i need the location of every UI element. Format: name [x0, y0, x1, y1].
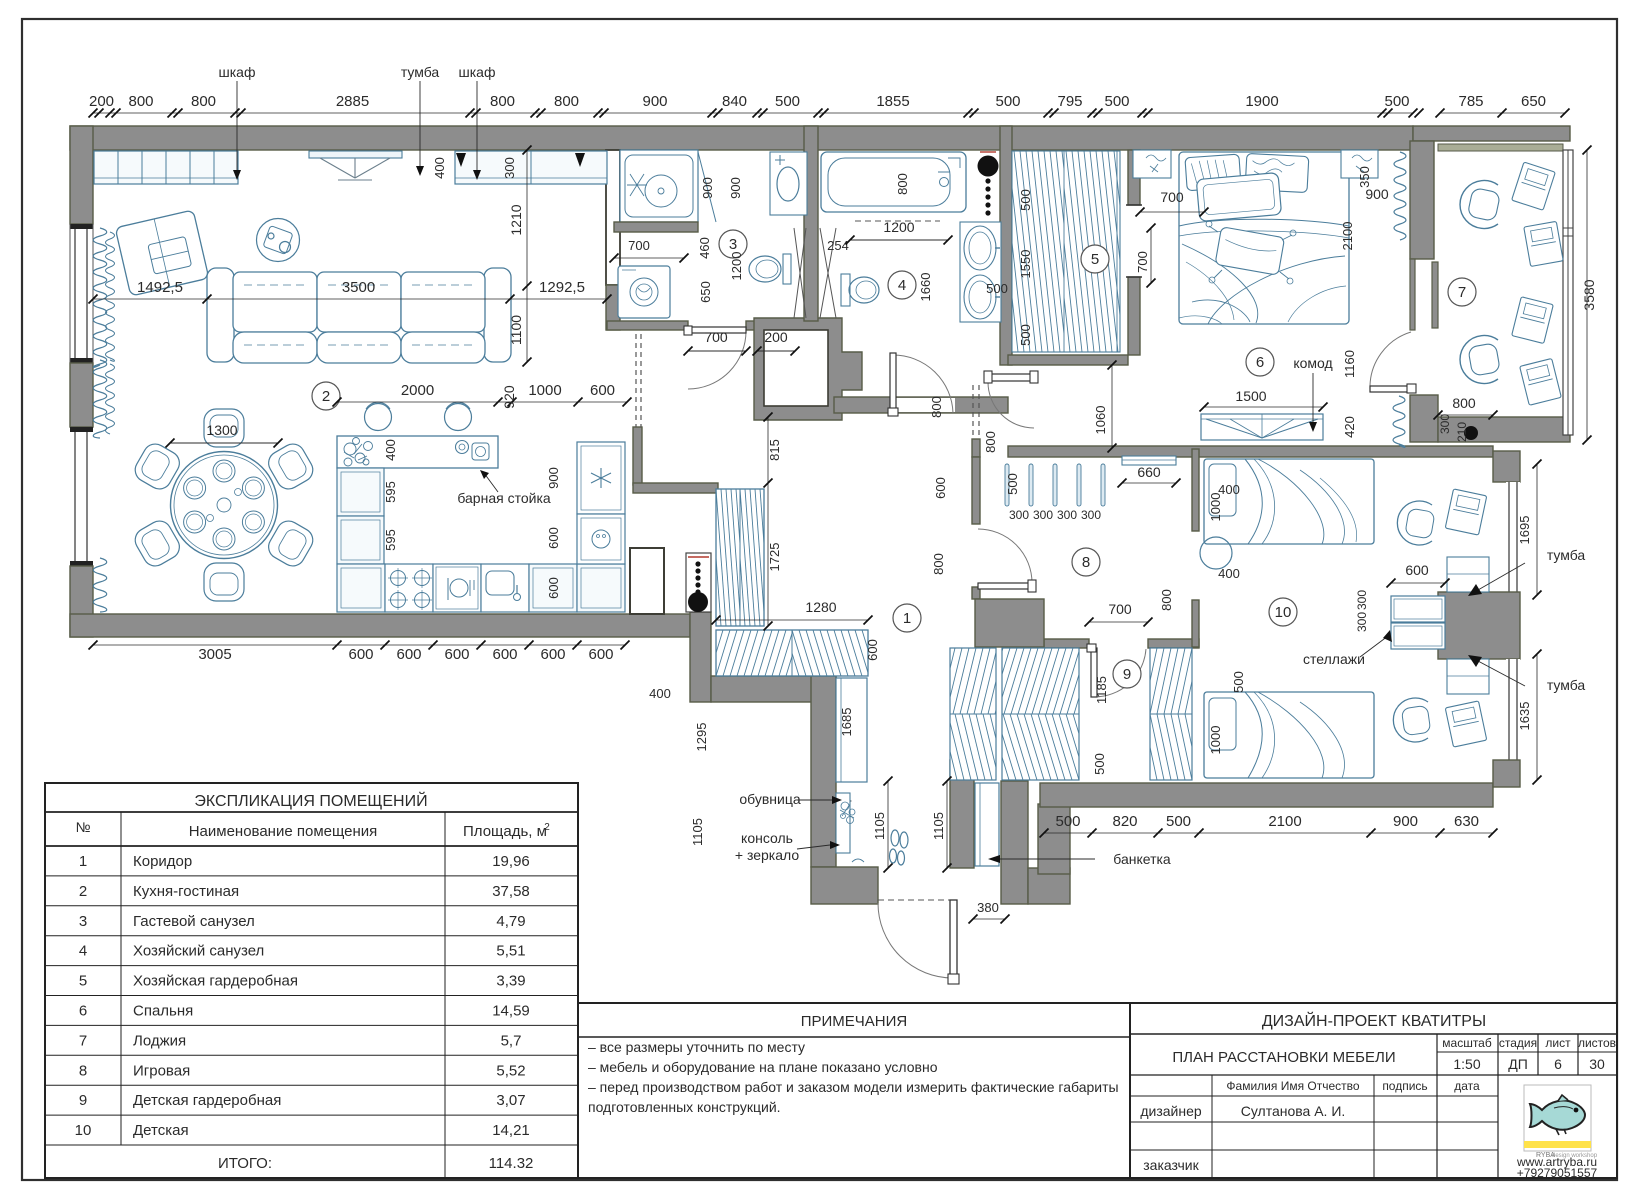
svg-text:Гастевой санузел: Гастевой санузел	[133, 913, 255, 930]
svg-text:4: 4	[79, 943, 87, 960]
svg-text:300: 300	[502, 157, 517, 179]
svg-text:банкетка: банкетка	[1113, 851, 1171, 867]
svg-text:ДП: ДП	[1508, 1056, 1528, 1072]
svg-text:840: 840	[722, 93, 747, 110]
svg-text:1900: 1900	[1245, 93, 1278, 110]
svg-text:1200: 1200	[883, 219, 914, 235]
svg-text:900: 900	[546, 467, 561, 489]
svg-text:500: 500	[1384, 93, 1409, 110]
svg-text:600: 600	[348, 646, 373, 663]
svg-text:660: 660	[1137, 464, 1161, 480]
svg-text:700: 700	[1160, 189, 1184, 205]
svg-text:1105: 1105	[931, 812, 946, 840]
svg-text:Кухня-гостиная: Кухня-гостиная	[133, 883, 239, 900]
svg-text:630: 630	[1454, 813, 1479, 830]
svg-text:Спальня: Спальня	[133, 1003, 193, 1020]
svg-text:4,79: 4,79	[496, 913, 525, 930]
svg-text:6: 6	[1256, 354, 1264, 371]
svg-text:Султанова А. И.: Султанова А. И.	[1241, 1103, 1346, 1119]
svg-text:9: 9	[1123, 666, 1131, 683]
svg-text:595: 595	[383, 529, 398, 551]
svg-text:600: 600	[396, 646, 421, 663]
svg-text:тумба: тумба	[1547, 547, 1586, 563]
svg-text:14,21: 14,21	[492, 1122, 530, 1139]
svg-text:200: 200	[764, 329, 788, 345]
svg-text:стеллажи: стеллажи	[1303, 651, 1365, 667]
svg-text:300: 300	[1355, 590, 1369, 610]
svg-text:500: 500	[986, 281, 1008, 296]
svg-text:1500: 1500	[1235, 388, 1266, 404]
svg-text:815: 815	[767, 439, 782, 461]
svg-text:600: 600	[444, 646, 469, 663]
svg-text:500: 500	[1231, 671, 1246, 693]
svg-text:300: 300	[1438, 414, 1452, 434]
svg-text:700: 700	[1135, 251, 1150, 273]
svg-text:700: 700	[704, 329, 728, 345]
svg-text:500: 500	[1018, 324, 1033, 346]
svg-text:800: 800	[1452, 395, 1476, 411]
svg-text:барная стойка: барная стойка	[457, 490, 551, 506]
svg-text:4: 4	[898, 277, 906, 294]
svg-text:300: 300	[1009, 508, 1029, 522]
svg-text:1210: 1210	[508, 204, 524, 235]
svg-text:1160: 1160	[1342, 350, 1357, 378]
svg-text:800: 800	[128, 93, 153, 110]
svg-text:+ зеркало: + зеркало	[735, 847, 799, 863]
svg-text:500: 500	[775, 93, 800, 110]
svg-text:300: 300	[1033, 508, 1053, 522]
svg-text:3,07: 3,07	[496, 1092, 525, 1109]
svg-text:1492,5: 1492,5	[137, 279, 183, 296]
svg-text:7: 7	[79, 1032, 87, 1049]
svg-text:1292,5: 1292,5	[539, 279, 585, 296]
svg-text:400: 400	[432, 157, 447, 179]
svg-text:1: 1	[903, 610, 911, 627]
svg-text:400: 400	[383, 439, 398, 461]
svg-text:1725: 1725	[767, 543, 782, 572]
svg-text:– все размеры уточнить по мест: – все размеры уточнить по месту	[588, 1039, 805, 1055]
svg-text:тумба: тумба	[401, 64, 440, 80]
svg-text:1000: 1000	[1208, 726, 1223, 755]
svg-text:заказчик: заказчик	[1143, 1157, 1199, 1173]
svg-text:8: 8	[79, 1062, 87, 1079]
svg-text:1300: 1300	[206, 422, 237, 438]
svg-text:800: 800	[929, 396, 944, 418]
svg-text:500: 500	[995, 93, 1020, 110]
svg-text:1855: 1855	[876, 93, 909, 110]
svg-text:Коридор: Коридор	[133, 853, 192, 870]
svg-text:3580: 3580	[1581, 279, 1597, 310]
svg-text:800: 800	[895, 173, 910, 195]
svg-text:– перед производством работ и: – перед производством работ и заказом мо…	[588, 1079, 1119, 1095]
svg-text:1100: 1100	[508, 315, 524, 345]
svg-text:500: 500	[1092, 753, 1107, 775]
svg-text:1000: 1000	[1208, 493, 1223, 522]
svg-text:Детская: Детская	[133, 1122, 189, 1139]
svg-text:Площадь, м: Площадь, м	[463, 823, 547, 840]
svg-text:1105: 1105	[690, 818, 705, 846]
svg-text:254: 254	[827, 238, 849, 253]
svg-text:8: 8	[1082, 554, 1090, 571]
svg-text:900: 900	[700, 177, 715, 199]
svg-text:300: 300	[1057, 508, 1077, 522]
svg-text:2: 2	[322, 388, 330, 405]
svg-text:шкаф: шкаф	[459, 64, 496, 80]
svg-text:700: 700	[1108, 601, 1132, 617]
svg-text:800: 800	[931, 553, 946, 575]
svg-text:масштаб: масштаб	[1442, 1036, 1492, 1050]
svg-text:6: 6	[79, 1003, 87, 1020]
svg-text:5,7: 5,7	[501, 1032, 522, 1049]
svg-text:стадия: стадия	[1499, 1036, 1537, 1050]
svg-text:тумба: тумба	[1547, 677, 1586, 693]
svg-text:600: 600	[933, 477, 948, 499]
svg-text:10: 10	[75, 1122, 92, 1139]
svg-text:200: 200	[89, 93, 114, 110]
svg-text:800: 800	[983, 431, 998, 453]
svg-text:460: 460	[697, 237, 712, 259]
svg-text:900: 900	[642, 93, 667, 110]
svg-text:800: 800	[1159, 589, 1174, 611]
svg-text:5,52: 5,52	[496, 1062, 525, 1079]
svg-text:+79279051557: +79279051557	[1517, 1166, 1598, 1180]
svg-text:9: 9	[79, 1092, 87, 1109]
svg-text:дизайнер: дизайнер	[1140, 1103, 1202, 1119]
svg-text:650: 650	[698, 281, 713, 303]
svg-text:комод: комод	[1293, 355, 1332, 371]
svg-text:5: 5	[1091, 251, 1099, 268]
svg-text:650: 650	[1521, 93, 1546, 110]
svg-text:114.32: 114.32	[489, 1155, 534, 1172]
svg-text:600: 600	[546, 527, 561, 549]
svg-text:1685: 1685	[839, 708, 854, 737]
svg-text:консоль: консоль	[741, 830, 793, 846]
svg-text:3,39: 3,39	[496, 973, 525, 990]
svg-text:900: 900	[728, 177, 743, 199]
svg-text:2885: 2885	[336, 93, 369, 110]
svg-text:2: 2	[544, 822, 550, 833]
svg-text:380: 380	[977, 900, 999, 915]
svg-text:1660: 1660	[918, 273, 933, 302]
svg-text:5,51: 5,51	[496, 943, 525, 960]
svg-text:Лоджия: Лоджия	[133, 1032, 186, 1049]
svg-text:800: 800	[490, 93, 515, 110]
svg-text:листов: листов	[1578, 1036, 1616, 1050]
svg-text:2100: 2100	[1340, 222, 1355, 251]
svg-text:7: 7	[1458, 284, 1466, 301]
svg-text:Наименование помещения: Наименование помещения	[189, 823, 378, 840]
svg-text:600: 600	[1405, 562, 1429, 578]
svg-text:1105: 1105	[872, 812, 887, 840]
svg-text:1: 1	[79, 853, 87, 870]
svg-text:700: 700	[628, 238, 650, 253]
svg-text:шкаф: шкаф	[219, 64, 256, 80]
svg-text:14,59: 14,59	[492, 1003, 530, 1020]
svg-text:800: 800	[191, 93, 216, 110]
svg-text:500: 500	[1018, 189, 1033, 211]
svg-text:подпись: подпись	[1382, 1079, 1427, 1093]
svg-text:ДИЗАЙН-ПРОЕКТ КВАТИТРЫ: ДИЗАЙН-ПРОЕКТ КВАТИТРЫ	[1262, 1011, 1486, 1030]
svg-text:3500: 3500	[342, 279, 375, 296]
svg-text:30: 30	[1589, 1056, 1605, 1072]
svg-text:обувница: обувница	[739, 791, 801, 807]
svg-text:Фамилия Имя Отчество: Фамилия Имя Отчество	[1226, 1079, 1359, 1093]
svg-text:лист: лист	[1545, 1036, 1571, 1050]
svg-text:№: №	[75, 819, 90, 835]
svg-text:– мебель и оборудование на пла: – мебель и оборудование на плане показан…	[588, 1059, 938, 1075]
svg-text:820: 820	[1112, 813, 1137, 830]
svg-text:600: 600	[540, 646, 565, 663]
svg-text:Хозяйский санузел: Хозяйский санузел	[133, 943, 264, 960]
svg-text:ИТОГО:: ИТОГО:	[218, 1155, 272, 1172]
svg-text:800: 800	[554, 93, 579, 110]
svg-text:6: 6	[1554, 1056, 1562, 1072]
svg-text:3: 3	[729, 236, 737, 253]
svg-text:10: 10	[1275, 604, 1292, 621]
svg-text:400: 400	[1218, 566, 1240, 581]
svg-text:37,58: 37,58	[492, 883, 530, 900]
svg-text:1295: 1295	[694, 723, 709, 752]
svg-text:300: 300	[1355, 612, 1369, 632]
svg-text:1200: 1200	[729, 252, 744, 281]
svg-text:ЭКСПЛИКАЦИЯ ПОМЕЩЕНИЙ: ЭКСПЛИКАЦИЯ ПОМЕЩЕНИЙ	[194, 791, 427, 810]
svg-text:1:50: 1:50	[1453, 1056, 1480, 1072]
svg-text:300: 300	[1081, 508, 1101, 522]
svg-text:ПРИМЕЧАНИЯ: ПРИМЕЧАНИЯ	[801, 1013, 908, 1030]
svg-text:600: 600	[492, 646, 517, 663]
svg-text:1695: 1695	[1517, 516, 1532, 545]
svg-text:дата: дата	[1454, 1079, 1480, 1093]
svg-text:785: 785	[1458, 93, 1483, 110]
svg-text:Детская гардеробная: Детская гардеробная	[133, 1092, 281, 1109]
svg-text:795: 795	[1057, 93, 1082, 110]
svg-text:Игровая: Игровая	[133, 1062, 190, 1079]
svg-text:1550: 1550	[1018, 250, 1033, 279]
svg-text:1635: 1635	[1517, 702, 1532, 731]
svg-text:600: 600	[590, 382, 615, 399]
svg-text:400: 400	[649, 686, 671, 701]
svg-text:3: 3	[79, 913, 87, 930]
svg-text:210: 210	[1455, 422, 1469, 442]
svg-text:2100: 2100	[1268, 813, 1301, 830]
svg-text:5: 5	[79, 973, 87, 990]
svg-text:Хозяйская гардеробная: Хозяйская гардеробная	[133, 973, 298, 990]
svg-text:500: 500	[1005, 473, 1020, 495]
svg-text:19,96: 19,96	[492, 853, 530, 870]
svg-text:900: 900	[1393, 813, 1418, 830]
svg-text:600: 600	[546, 577, 561, 599]
svg-text:1185: 1185	[1094, 676, 1109, 704]
svg-text:420: 420	[1342, 416, 1357, 438]
svg-text:500: 500	[1166, 813, 1191, 830]
svg-text:3005: 3005	[198, 646, 231, 663]
svg-text:920: 920	[501, 385, 517, 409]
svg-text:подготовленных конструкций.: подготовленных конструкций.	[588, 1099, 781, 1115]
svg-text:1060: 1060	[1093, 406, 1108, 435]
svg-text:350: 350	[1357, 166, 1372, 188]
svg-text:500: 500	[1104, 93, 1129, 110]
svg-text:2000: 2000	[401, 382, 434, 399]
svg-text:1280: 1280	[805, 599, 836, 615]
svg-text:ПЛАН РАССТАНОВКИ МЕБЕЛИ: ПЛАН РАССТАНОВКИ МЕБЕЛИ	[1172, 1049, 1395, 1066]
svg-text:600: 600	[865, 639, 880, 661]
svg-text:600: 600	[588, 646, 613, 663]
svg-text:1000: 1000	[528, 382, 561, 399]
svg-text:595: 595	[383, 481, 398, 503]
svg-text:500: 500	[1055, 813, 1080, 830]
svg-text:900: 900	[1365, 186, 1389, 202]
svg-text:2: 2	[79, 883, 87, 900]
